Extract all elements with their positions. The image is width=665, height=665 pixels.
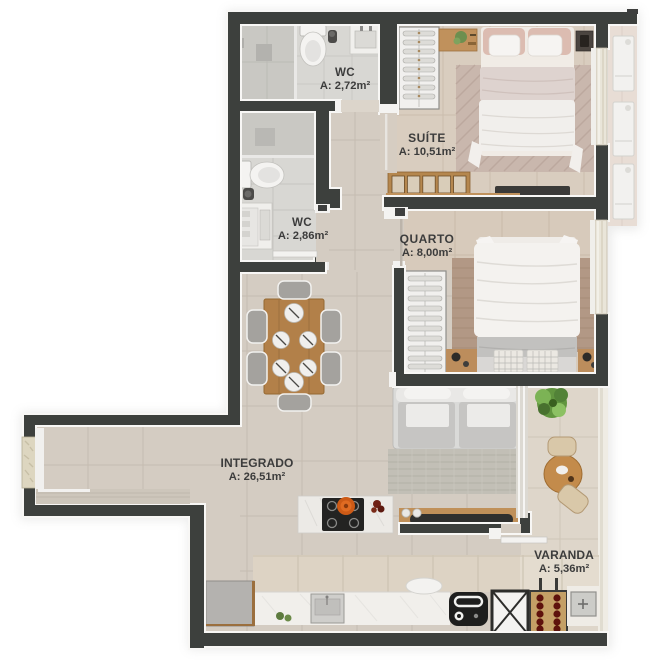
svg-text:SUÍTE: SUÍTE [408,130,446,145]
svg-text:WC: WC [335,66,355,79]
svg-text:A: 2,86m²: A: 2,86m² [278,230,329,242]
svg-text:A: 2,72m²: A: 2,72m² [320,80,371,92]
svg-text:WC: WC [292,216,312,229]
svg-text:QUARTO: QUARTO [400,232,455,246]
svg-text:INTEGRADO: INTEGRADO [221,456,294,470]
svg-text:VARANDA: VARANDA [534,548,594,562]
svg-text:A: 8,00m²: A: 8,00m² [402,247,453,259]
svg-text:A: 5,36m²: A: 5,36m² [539,563,590,575]
svg-text:A: 10,51m²: A: 10,51m² [399,146,456,158]
svg-text:A: 26,51m²: A: 26,51m² [229,471,286,483]
